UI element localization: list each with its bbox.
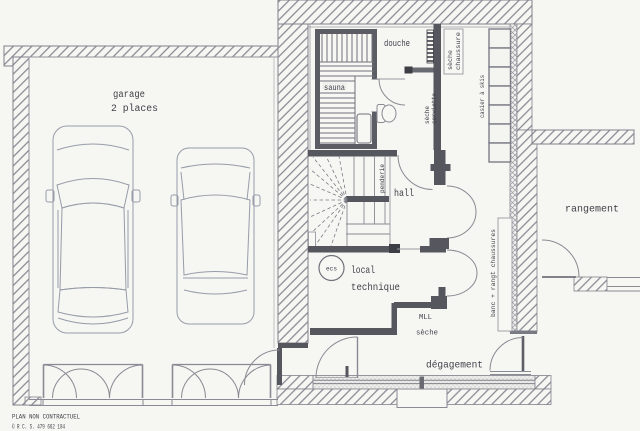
svg-text:douche: douche <box>384 39 410 49</box>
svg-text:ecs: ecs <box>326 266 337 273</box>
svg-text:sauna: sauna <box>324 84 345 93</box>
svg-text:chaussure: chaussure <box>455 32 463 70</box>
svg-text:sèche: sèche <box>447 50 455 70</box>
svg-text:hall: hall <box>394 188 414 200</box>
svg-text:dégagement: dégagement <box>426 360 483 372</box>
svg-text:casier à skis: casier à skis <box>479 75 486 118</box>
svg-text:MLL: MLL <box>419 314 432 322</box>
svg-text:garage: garage <box>113 90 145 101</box>
svg-text:serviette: serviette <box>431 93 438 124</box>
svg-text:banc + rangt chaussures: banc + rangt chaussures <box>490 229 497 317</box>
svg-text:© R C. S. 479 662 184: © R C. S. 479 662 184 <box>12 424 65 431</box>
svg-text:rangement: rangement <box>565 204 619 216</box>
svg-text:PLAN NON CONTRACTUEL: PLAN NON CONTRACTUEL <box>12 414 80 421</box>
svg-text:2 places: 2 places <box>111 103 158 115</box>
svg-text:sèche: sèche <box>424 106 431 124</box>
svg-text:penderie: penderie <box>379 164 386 193</box>
svg-text:local: local <box>351 265 375 277</box>
svg-text:technique: technique <box>351 282 400 294</box>
svg-text:sèche: sèche <box>416 330 438 338</box>
